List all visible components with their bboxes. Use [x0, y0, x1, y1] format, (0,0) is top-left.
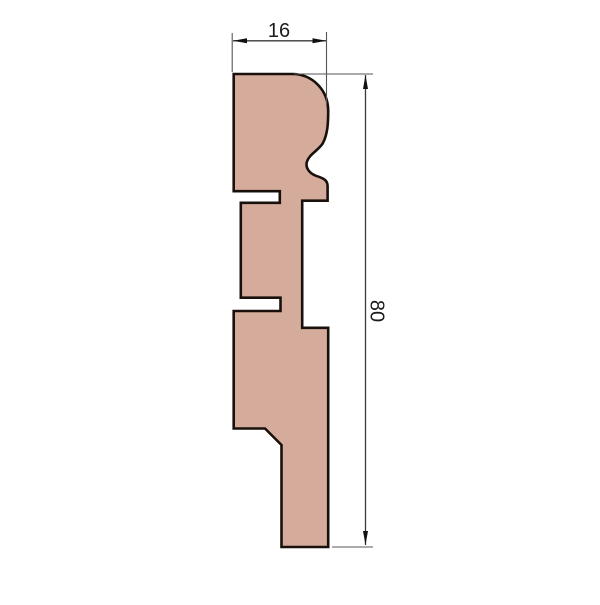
- svg-text:16: 16: [268, 20, 290, 42]
- svg-text:80: 80: [366, 300, 388, 322]
